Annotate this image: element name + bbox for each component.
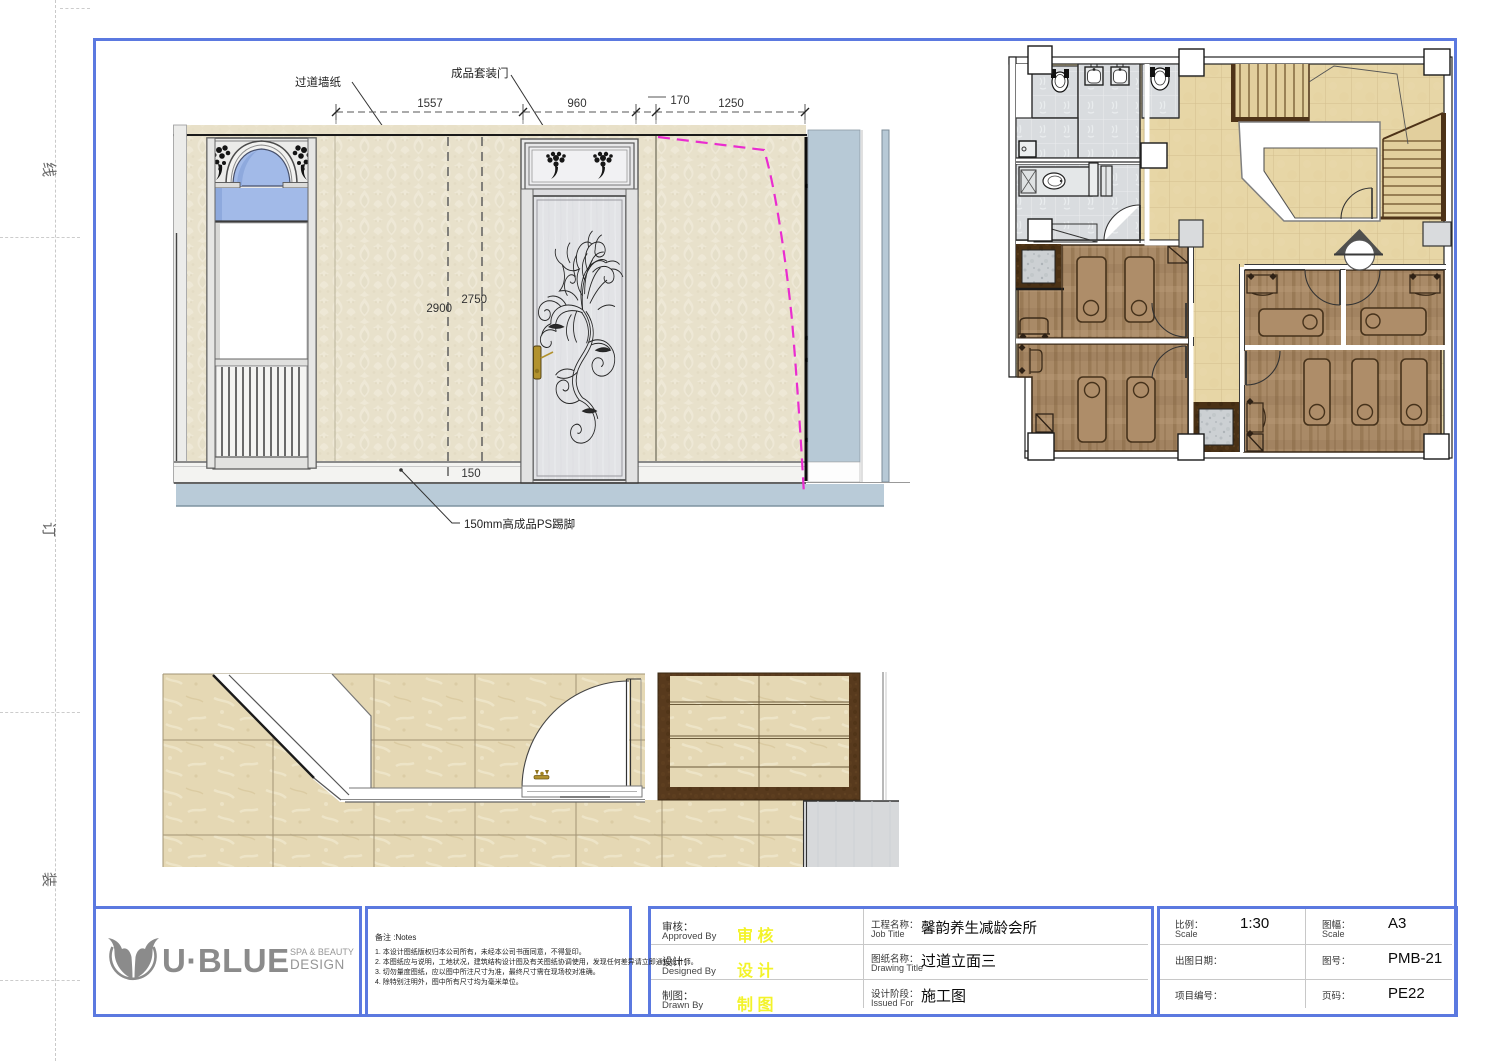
svg-text:2750: 2750 <box>461 294 487 306</box>
svg-text:960: 960 <box>567 98 586 110</box>
svg-text:150mm高成品PS踢脚: 150mm高成品PS踢脚 <box>464 517 575 531</box>
svg-text:DESIGN: DESIGN <box>290 957 345 972</box>
svg-text:1250: 1250 <box>718 98 744 110</box>
svg-text:U·BLUE: U·BLUE <box>162 942 290 979</box>
svg-text:过道墙纸: 过道墙纸 <box>295 75 341 89</box>
svg-text:2900: 2900 <box>426 303 452 315</box>
svg-text:SPA & BEAUTY: SPA & BEAUTY <box>290 947 354 957</box>
svg-text:成品套装门: 成品套装门 <box>451 66 509 80</box>
svg-text:150: 150 <box>461 468 480 480</box>
svg-text:1557: 1557 <box>417 98 443 110</box>
svg-text:170: 170 <box>670 95 689 107</box>
